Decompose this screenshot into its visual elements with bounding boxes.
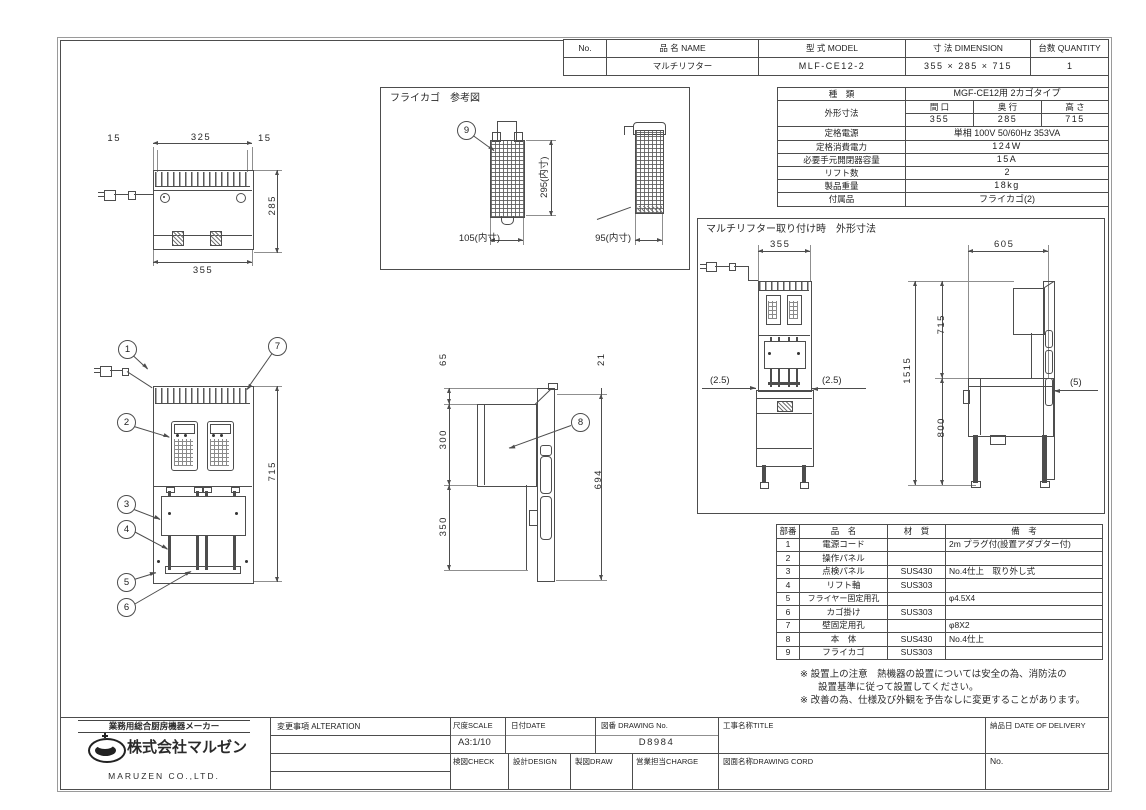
plan-dim-left: 15 xyxy=(101,134,121,144)
side-lift-rod xyxy=(526,485,527,570)
parts-material-header: 材 質 xyxy=(888,525,946,539)
delivery-no-label: No. xyxy=(990,756,1003,766)
parts-row-remarks: No.4仕上 取り外し式 xyxy=(946,565,1103,579)
drawing-line xyxy=(210,439,229,466)
drawing-line: No. 品 名 NAME 型 式 MODEL 寸 法 DIMENSION 台数 … xyxy=(564,40,1109,76)
drawing-line xyxy=(1054,390,1098,391)
spec-kind-label: 種 類 xyxy=(778,88,906,101)
drawing-line xyxy=(702,388,756,389)
drawing-line xyxy=(97,742,113,749)
fry-basket-side xyxy=(635,130,664,214)
drawing-line xyxy=(980,378,981,435)
install-total-height-dim: 1515 xyxy=(903,355,913,385)
drawing-line xyxy=(114,194,128,195)
parts-row-name: リフト軸 xyxy=(800,579,888,593)
callout-2: 2 xyxy=(117,413,136,432)
spec-depth-label: 奥 行 xyxy=(974,101,1042,114)
parts-row-material: SUS303 xyxy=(888,646,946,660)
drawing-line xyxy=(758,251,810,252)
basket-depth-dim: 95(内寸) xyxy=(576,234,631,244)
drawing-line xyxy=(540,496,552,540)
header-model-label: 型 式 MODEL xyxy=(759,40,906,58)
parts-row-remarks xyxy=(946,579,1103,593)
plan-dim-width: 355 xyxy=(186,266,220,276)
spec-accessory-label: 付属品 xyxy=(778,193,906,207)
parts-row-material xyxy=(888,538,946,552)
drawing-line: 8本 体SUS430No.4仕上 xyxy=(777,633,1103,647)
drawing-line xyxy=(632,753,633,789)
install-gap-left-dim: (2.5) xyxy=(710,376,730,386)
install-side-depth-dim: 605 xyxy=(994,240,1014,250)
callout-4: 4 xyxy=(117,520,136,539)
drawing-line xyxy=(210,424,231,434)
spec-kind-value: MGF-CE12用 2カゴタイプ xyxy=(906,88,1109,101)
drawing-line: 必要手元開閉器容量 15A xyxy=(778,154,1109,167)
note-spec-change: ※ 改善の為、仕様及び外観を予告なしに変更することがあります。 xyxy=(800,696,1085,706)
drawing-line: リフト数 2 xyxy=(778,167,1109,180)
callout-7: 7 xyxy=(268,337,287,356)
drawing-line xyxy=(812,388,866,389)
parts-row-remarks: 2m プラグ付(設置アダプター付) xyxy=(946,538,1103,552)
side-dim-total: 694 xyxy=(594,464,604,494)
drawing-line xyxy=(270,753,450,754)
drawing-line xyxy=(172,231,184,246)
drawing-line xyxy=(963,390,970,404)
drawing-line xyxy=(163,196,165,198)
drawing-line xyxy=(768,301,777,319)
callout-3: 3 xyxy=(117,495,136,514)
basket-width-dim: 105(内寸) xyxy=(442,234,500,244)
drawing-line xyxy=(102,735,108,737)
parts-row-material xyxy=(888,592,946,606)
header-table: No. 品 名 NAME 型 式 MODEL 寸 法 DIMENSION 台数 … xyxy=(563,39,1109,76)
install-upper-height-dim: 715 xyxy=(937,309,947,339)
drawing-line xyxy=(235,512,238,515)
parts-row-remarks: No.4仕上 xyxy=(946,633,1103,647)
basket-height-dim: 295(内寸) xyxy=(540,147,550,207)
drawing-line xyxy=(551,140,552,216)
scale-value: A3:1/10 xyxy=(458,738,491,748)
maker-tagline: 業務用総合厨房機器メーカー xyxy=(78,720,250,733)
drawing-line xyxy=(570,753,571,789)
drawing-line xyxy=(153,190,252,191)
drawing-line xyxy=(789,301,798,319)
callout-5: 5 xyxy=(117,573,136,592)
drawing-line: No. 品 名 NAME 型 式 MODEL 寸 法 DIMENSION 台数 … xyxy=(564,40,1109,58)
drawing-line: 7壁固定用孔φ8X2 xyxy=(777,619,1103,633)
parts-row-material: SUS430 xyxy=(888,565,946,579)
header-dim-label: 寸 法 DIMENSION xyxy=(906,40,1031,58)
drawing-line xyxy=(505,717,506,753)
design-label: 設計DESIGN xyxy=(513,756,557,767)
drawing-line: 外形寸法 間 口 奥 行 高 さ xyxy=(778,101,1109,114)
drawing-line: マルチリフター MLF-CE12-2 355 × 285 × 715 1 xyxy=(564,58,1109,76)
drawing-line xyxy=(210,231,222,246)
drawing-line xyxy=(157,560,160,563)
drawing-line xyxy=(174,439,193,466)
parts-row-remarks xyxy=(946,646,1103,660)
plan-screw-hole-left xyxy=(160,193,170,203)
header-name-label: 品 名 NAME xyxy=(607,40,759,58)
company-name: 株式会社マルゼン xyxy=(127,740,247,757)
drawing-line xyxy=(802,465,806,483)
callout-6: 6 xyxy=(117,598,136,617)
drawing-line xyxy=(1045,350,1053,374)
parts-row-no: 3 xyxy=(777,565,800,579)
drawing-line xyxy=(497,121,517,122)
parts-row-no: 5 xyxy=(777,592,800,606)
spec-height-value: 715 xyxy=(1042,114,1109,127)
spec-breaker-value: 15A xyxy=(906,154,1109,167)
drawing-line xyxy=(449,388,450,404)
drawing-line xyxy=(174,424,195,434)
drawing-line xyxy=(748,280,758,281)
side-dim-mid: 300 xyxy=(439,423,449,455)
drawing-no-value: D8984 xyxy=(595,738,718,748)
parts-row-no: 4 xyxy=(777,579,800,593)
header-dim-value: 355 × 285 × 715 xyxy=(906,58,1031,76)
plan-dim-depth: 285 xyxy=(268,190,278,220)
parts-name-header: 品 名 xyxy=(800,525,888,539)
drawing-line xyxy=(636,206,662,212)
header-no-value xyxy=(564,58,607,76)
drawing-line xyxy=(718,717,719,789)
company-name-en: MARUZEN CO.,LTD. xyxy=(78,772,250,781)
spec-power-label: 定格電源 xyxy=(778,127,906,141)
drawing-line: 6カゴ掛けSUS303 xyxy=(777,606,1103,620)
drawing-line xyxy=(110,370,122,371)
plan-dim-right: 15 xyxy=(258,134,278,144)
fry-basket-front xyxy=(490,140,525,218)
drawing-line xyxy=(1045,330,1053,348)
drawing-line: 2操作パネル xyxy=(777,552,1103,566)
parts-row-name: 壁固定用孔 xyxy=(800,619,888,633)
drawing-line xyxy=(756,413,812,414)
spec-accessory-value: フライカゴ(2) xyxy=(906,193,1109,207)
install-power-plug xyxy=(706,262,717,272)
drawing-line xyxy=(635,240,662,241)
parts-row-name: 電源コード xyxy=(800,538,888,552)
drawing-line xyxy=(971,481,981,488)
date-label: 日付DATE xyxy=(511,720,545,731)
scale-label: 尺度SCALE xyxy=(453,720,493,731)
drawing-line: 4リフト軸SUS303 xyxy=(777,579,1103,593)
parts-row-no: 7 xyxy=(777,619,800,633)
drawing-line xyxy=(270,735,450,736)
spec-consumption-label: 定格消費電力 xyxy=(778,141,906,154)
drawing-no-label: 図番 DRAWING No. xyxy=(601,720,668,731)
drawing-line: 部番 品 名 材 質 備 考 xyxy=(777,525,1103,539)
parts-row-remarks: φ8X2 xyxy=(946,619,1103,633)
parts-row-name: 操作パネル xyxy=(800,552,888,566)
drawing-line xyxy=(1042,435,1047,483)
drawing-line: 3点検パネルSUS430No.4仕上 取り外し式 xyxy=(777,565,1103,579)
drawing-line xyxy=(800,482,809,489)
parts-row-name: カゴ掛け xyxy=(800,606,888,620)
install-side-lifter-box xyxy=(1013,288,1045,335)
side-dim-back: 21 xyxy=(597,349,607,369)
drawing-line: 9フライカゴSUS303 xyxy=(777,646,1103,660)
drawing-line xyxy=(220,434,223,437)
drawing-line xyxy=(797,352,800,355)
drawing-line xyxy=(168,512,171,515)
drawing-line xyxy=(760,482,769,489)
drawing-line xyxy=(748,266,749,280)
side-dim-bottom: 350 xyxy=(439,510,449,542)
parts-row-remarks xyxy=(946,552,1103,566)
parts-row-material xyxy=(888,552,946,566)
plan-power-plug xyxy=(104,190,116,201)
front-power-plug xyxy=(100,366,112,377)
spec-width-label: 間 口 xyxy=(906,101,974,114)
parts-row-name: フライカゴ xyxy=(800,646,888,660)
check-label: 検図CHECK xyxy=(453,756,494,767)
plan-vent-slots xyxy=(155,172,250,187)
parts-row-remarks xyxy=(946,606,1103,620)
callout-1: 1 xyxy=(118,340,137,359)
drawing-line xyxy=(624,126,625,135)
header-qty-value: 1 xyxy=(1031,58,1109,76)
drawing-line xyxy=(734,266,748,267)
project-title-label: 工事名称TITLE xyxy=(723,720,773,731)
drawing-line: 部番 品 名 材 質 備 考 1電源コード2m プラグ付(設置アダプター付) 2… xyxy=(777,525,1103,660)
install-box-title: マルチリフター取り付け時 外形寸法 xyxy=(706,224,876,235)
drawing-line xyxy=(768,382,800,385)
side-dim-top: 65 xyxy=(439,348,449,370)
drawing-line xyxy=(729,263,736,271)
drawing-line xyxy=(529,510,538,526)
drawing-line xyxy=(60,717,1108,718)
drawing-line xyxy=(624,126,634,127)
parts-row-no: 6 xyxy=(777,606,800,620)
drawing-line: 種 類 MGF-CE12用 2カゴタイプ 外形寸法 間 口 奥 行 高 さ 35… xyxy=(778,88,1109,207)
spec-breaker-label: 必要手元開閉器容量 xyxy=(778,154,906,167)
drawing-line xyxy=(1040,481,1050,488)
drawing-line xyxy=(985,717,986,789)
drawing-line xyxy=(700,268,706,269)
drawing-name-label: 図面名称DRAWING CORD xyxy=(723,756,813,767)
drawing-line: 製品重量 18kg xyxy=(778,180,1109,193)
spec-height-label: 高 さ xyxy=(1042,101,1109,114)
spec-outer-label: 外形寸法 xyxy=(778,101,906,127)
drawing-line: 1電源コード2m プラグ付(設置アダプター付) xyxy=(777,538,1103,552)
parts-row-no: 1 xyxy=(777,538,800,552)
parts-row-material: SUS303 xyxy=(888,579,946,593)
drawing-line xyxy=(484,404,485,485)
install-front-width-dim: 355 xyxy=(770,240,790,250)
parts-row-name: フライヤー固定用孔 xyxy=(800,592,888,606)
draw-label: 製図DRAW xyxy=(575,756,613,767)
install-gap-right-dim: (2.5) xyxy=(822,376,842,386)
drawing-line xyxy=(1031,333,1032,378)
drawing-line xyxy=(134,194,153,195)
spec-lift-label: リフト数 xyxy=(778,167,906,180)
basket-box-title: フライカゴ 参考図 xyxy=(390,93,480,104)
parts-row-name: 点検パネル xyxy=(800,565,888,579)
parts-row-material xyxy=(888,619,946,633)
header-name-value: マルチリフター xyxy=(607,58,759,76)
spec-power-value: 単相 100V 50/60Hz 353VA xyxy=(906,127,1109,141)
drawing-sheet: No. 品 名 NAME 型 式 MODEL 寸 法 DIMENSION 台数 … xyxy=(0,0,1146,810)
parts-remarks-header: 備 考 xyxy=(946,525,1103,539)
drawing-line xyxy=(245,560,248,563)
plan-dim-center: 325 xyxy=(184,133,218,143)
drawing-line xyxy=(176,434,179,437)
drawing-line: 定格消費電力 124W xyxy=(778,141,1109,154)
drawing-line xyxy=(540,456,552,494)
callout-8: 8 xyxy=(571,413,590,432)
drawing-line xyxy=(990,435,1006,445)
drawing-line xyxy=(764,341,806,369)
callout-9: 9 xyxy=(457,121,476,140)
drawing-line xyxy=(540,445,552,456)
install-lower-height-dim: 800 xyxy=(937,412,947,442)
drawing-line xyxy=(915,281,916,485)
drawing-line xyxy=(715,266,729,267)
header-no-label: No. xyxy=(564,40,607,58)
drawing-line xyxy=(968,251,1048,252)
parts-row-remarks: φ4.5X4 xyxy=(946,592,1103,606)
spec-weight-value: 18kg xyxy=(906,180,1109,193)
parts-row-name: 本 体 xyxy=(800,633,888,647)
spec-lift-value: 2 xyxy=(906,167,1109,180)
drawing-line xyxy=(768,352,771,355)
drawing-line: 種 類 MGF-CE12用 2カゴタイプ xyxy=(778,88,1109,101)
drawing-line xyxy=(759,282,809,291)
spec-weight-label: 製品重量 xyxy=(778,180,906,193)
drawing-line: 付属品 フライカゴ(2) xyxy=(778,193,1109,207)
spec-table: 種 類 MGF-CE12用 2カゴタイプ 外形寸法 間 口 奥 行 高 さ 35… xyxy=(777,87,1109,207)
front-inspection-panel xyxy=(161,496,246,536)
drawing-line xyxy=(700,264,706,265)
drawing-line xyxy=(270,771,450,772)
install-wall-gap-dim: (5) xyxy=(1070,378,1082,388)
drawing-line xyxy=(508,753,509,789)
delivery-date-label: 納品日 DATE OF DELIVERY xyxy=(990,720,1086,731)
drawing-line xyxy=(501,216,514,225)
drawing-line: 定格電源 単相 100V 50/60Hz 353VA xyxy=(778,127,1109,141)
parts-no-header: 部番 xyxy=(777,525,800,539)
front-dim-height: 715 xyxy=(268,456,278,486)
drawing-line xyxy=(212,434,215,437)
header-model-value: MLF-CE12-2 xyxy=(759,58,906,76)
drawing-line xyxy=(758,335,810,336)
drawing-line xyxy=(450,753,1108,754)
spec-consumption-value: 124W xyxy=(906,141,1109,154)
drawing-line xyxy=(153,262,252,263)
parts-row-no: 9 xyxy=(777,646,800,660)
drawing-line xyxy=(153,235,252,236)
drawing-line xyxy=(756,448,812,449)
side-body xyxy=(477,404,537,487)
parts-row-material: SUS303 xyxy=(888,606,946,620)
drawing-line xyxy=(756,398,812,399)
note-install-2: 設置基準に従って設置してください。 xyxy=(818,683,978,693)
parts-row-material: SUS430 xyxy=(888,633,946,647)
front-vent-slots xyxy=(155,388,250,404)
charge-label: 営業担当CHARGE xyxy=(636,756,698,767)
parts-table: 部番 品 名 材 質 備 考 1電源コード2m プラグ付(設置アダプター付) 2… xyxy=(776,524,1103,660)
drawing-line xyxy=(777,401,793,412)
alteration-label: 変更事項 ALTERATION xyxy=(277,721,360,732)
parts-row-no: 8 xyxy=(777,633,800,647)
spec-depth-value: 285 xyxy=(974,114,1042,127)
drawing-line xyxy=(184,434,187,437)
plan-screw-hole-right xyxy=(236,193,246,203)
drawing-line xyxy=(128,191,136,200)
drawing-line xyxy=(973,435,978,483)
drawing-line: 5フライヤー固定用孔φ4.5X4 xyxy=(777,592,1103,606)
header-qty-label: 台数 QUANTITY xyxy=(1031,40,1109,58)
drawing-line xyxy=(762,465,766,483)
front-basket-hanger xyxy=(165,566,241,574)
note-install-1: ※ 設置上の注意 熱機器の設置については安全の為、消防法の xyxy=(800,670,1067,680)
parts-row-no: 2 xyxy=(777,552,800,566)
spec-width-value: 355 xyxy=(906,114,974,127)
